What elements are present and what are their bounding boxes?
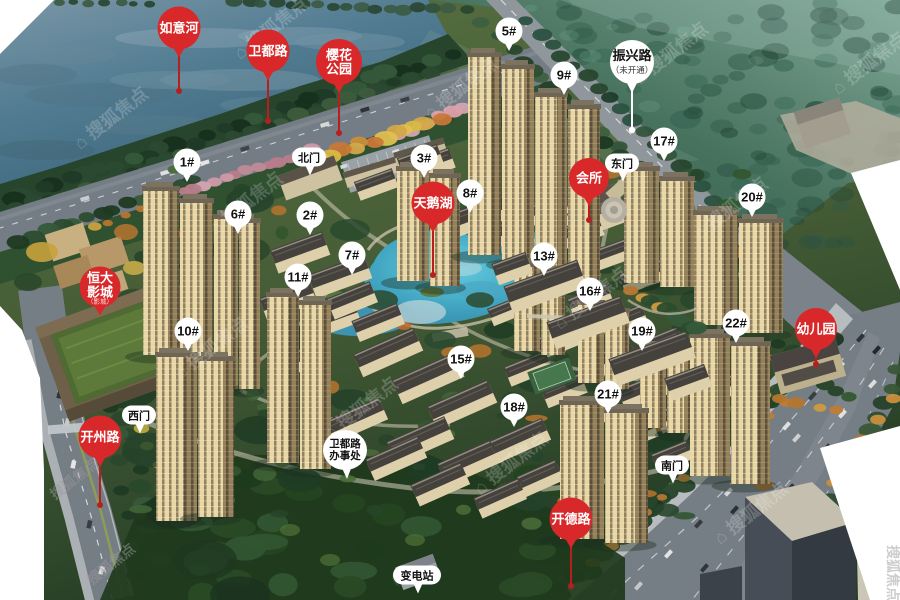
svg-text:19#: 19# xyxy=(631,324,653,339)
svg-text:天鹅湖: 天鹅湖 xyxy=(413,196,452,211)
svg-text:振兴路: 振兴路 xyxy=(612,48,652,63)
svg-text:北门: 北门 xyxy=(298,151,320,165)
svg-text:10#: 10# xyxy=(177,324,199,339)
svg-text:15#: 15# xyxy=(450,352,472,367)
svg-text:幼儿园: 幼儿园 xyxy=(796,322,835,337)
svg-text:卫都路: 卫都路 xyxy=(329,437,361,450)
svg-text:9#: 9# xyxy=(557,68,572,83)
svg-text:（未开通）: （未开通） xyxy=(611,65,654,75)
svg-text:21#: 21# xyxy=(597,387,619,402)
svg-text:南门: 南门 xyxy=(661,459,683,473)
svg-text:2#: 2# xyxy=(303,208,318,223)
svg-text:17#: 17# xyxy=(653,134,675,149)
svg-text:16#: 16# xyxy=(579,284,601,299)
svg-text:影城: 影城 xyxy=(87,285,113,300)
svg-text:会所: 会所 xyxy=(576,171,602,186)
svg-text:8#: 8# xyxy=(463,186,478,201)
svg-text:11#: 11# xyxy=(288,270,310,285)
svg-text:5#: 5# xyxy=(502,24,517,39)
svg-text:恒大: 恒大 xyxy=(87,271,113,286)
svg-text:开德路: 开德路 xyxy=(551,512,591,527)
svg-text:（影城）: （影城） xyxy=(87,297,113,306)
svg-text:西门: 西门 xyxy=(128,409,150,423)
svg-text:18#: 18# xyxy=(503,400,525,415)
svg-text:如意河: 如意河 xyxy=(159,21,198,36)
svg-text:13#: 13# xyxy=(533,249,555,264)
svg-text:20#: 20# xyxy=(741,190,763,205)
svg-text:开州路: 开州路 xyxy=(80,430,120,445)
svg-text:6#: 6# xyxy=(231,207,246,222)
svg-text:变电站: 变电站 xyxy=(401,569,434,583)
svg-text:1#: 1# xyxy=(180,155,195,170)
svg-text:办事处: 办事处 xyxy=(329,449,361,462)
svg-text:卫都路: 卫都路 xyxy=(248,44,288,59)
svg-text:樱花: 樱花 xyxy=(326,48,352,63)
svg-text:搜狐焦点: 搜狐焦点 xyxy=(885,545,900,600)
svg-text:公园: 公园 xyxy=(326,62,352,77)
svg-text:东门: 东门 xyxy=(611,157,633,171)
svg-text:3#: 3# xyxy=(417,151,432,166)
svg-text:7#: 7# xyxy=(345,248,360,263)
svg-text:22#: 22# xyxy=(725,316,747,331)
